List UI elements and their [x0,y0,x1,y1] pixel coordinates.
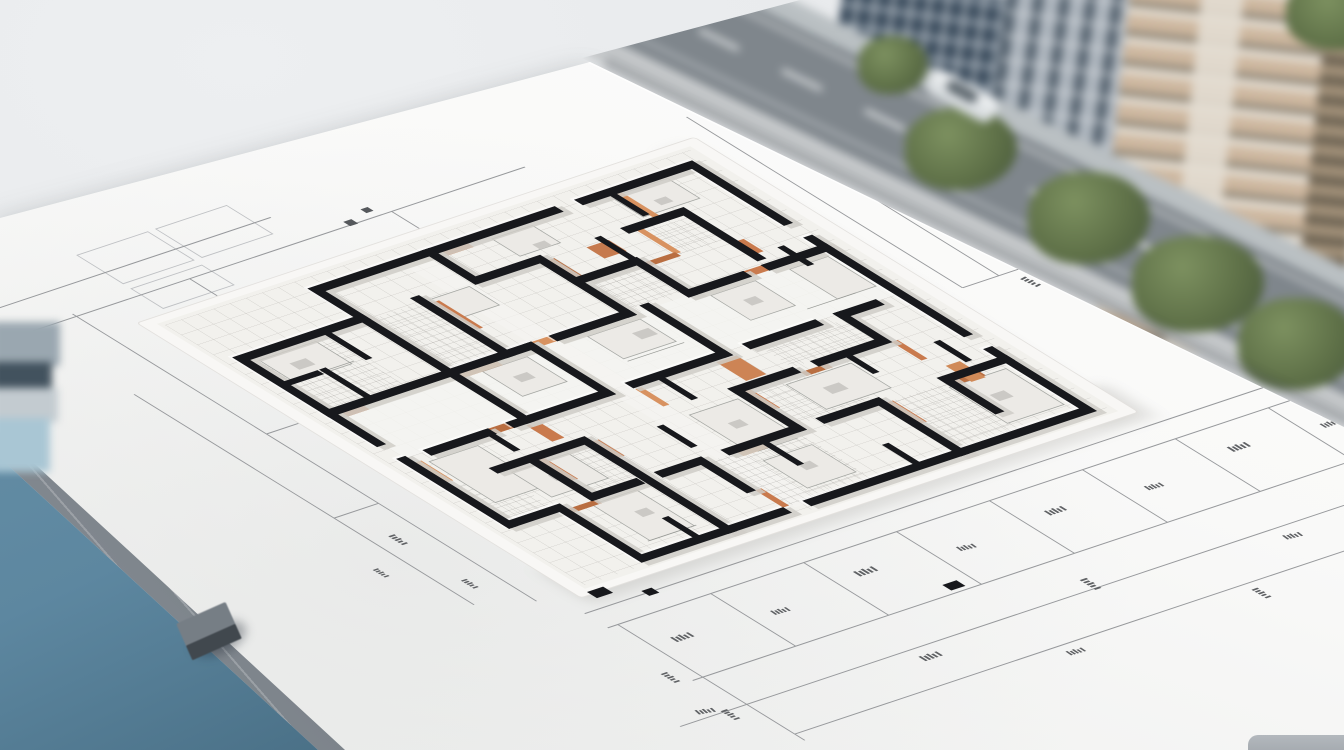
scene-root [0,0,1344,750]
corner-object [1248,735,1344,750]
left-edge-documents [0,322,60,472]
